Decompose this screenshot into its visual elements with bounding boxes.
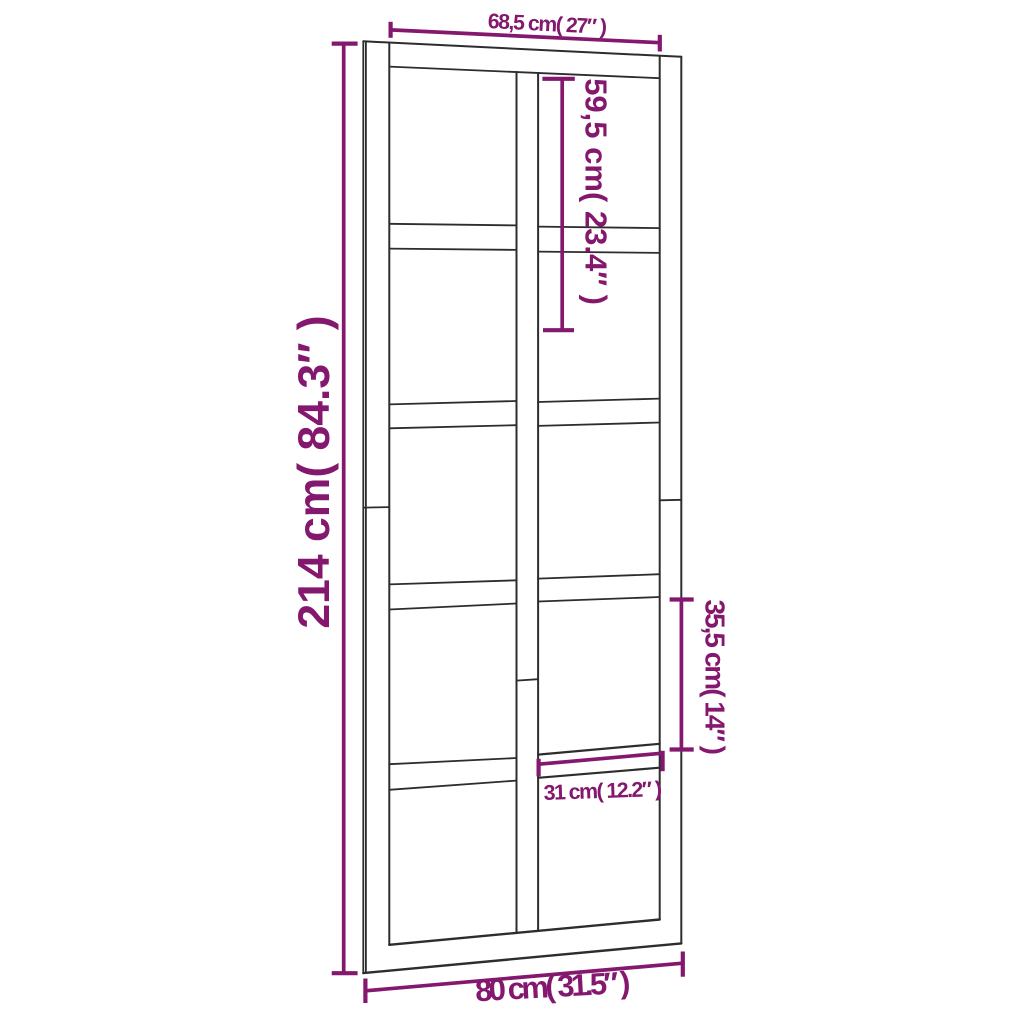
svg-text:35,5 cm( 14″ ): 35,5 cm( 14″ ) bbox=[700, 599, 731, 753]
svg-text:59,5 cm( 23.4″ ): 59,5 cm( 23.4″ ) bbox=[579, 78, 614, 305]
svg-text:31 cm( 12.2″ ): 31 cm( 12.2″ ) bbox=[543, 777, 662, 805]
svg-text:214 cm( 84.3″ ): 214 cm( 84.3″ ) bbox=[290, 315, 339, 628]
